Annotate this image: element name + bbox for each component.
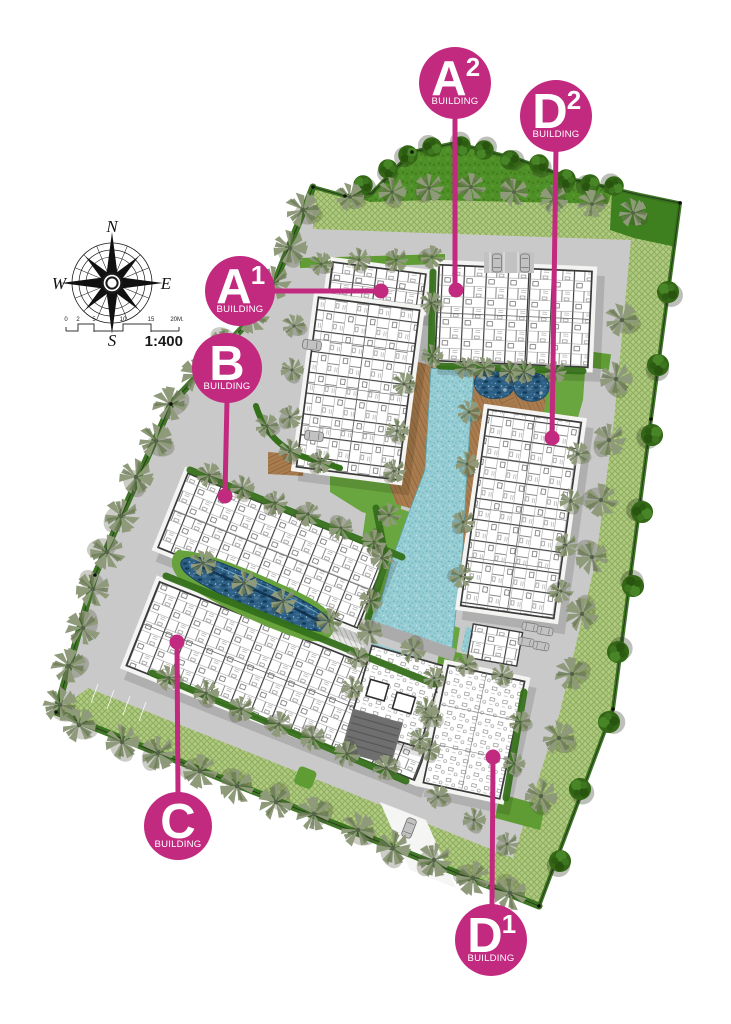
svg-text:2: 2 [466, 52, 480, 82]
svg-text:2: 2 [567, 85, 581, 115]
svg-text:BUILDING: BUILDING [217, 304, 264, 315]
svg-text:BUILDING: BUILDING [155, 839, 202, 850]
svg-text:BUILDING: BUILDING [533, 129, 580, 140]
svg-text:1: 1 [502, 909, 516, 939]
svg-text:W: W [52, 274, 68, 293]
svg-text:S: S [108, 331, 117, 350]
svg-text:E: E [160, 274, 172, 293]
svg-text:1:400: 1:400 [145, 333, 183, 350]
svg-text:BUILDING: BUILDING [432, 96, 479, 107]
svg-text:1: 1 [251, 260, 265, 290]
svg-text:20M.: 20M. [170, 317, 184, 323]
svg-text:BUILDING: BUILDING [204, 381, 251, 392]
svg-text:15: 15 [148, 317, 155, 323]
svg-text:N: N [105, 217, 119, 236]
svg-text:10: 10 [120, 317, 127, 323]
svg-text:BUILDING: BUILDING [468, 953, 515, 964]
